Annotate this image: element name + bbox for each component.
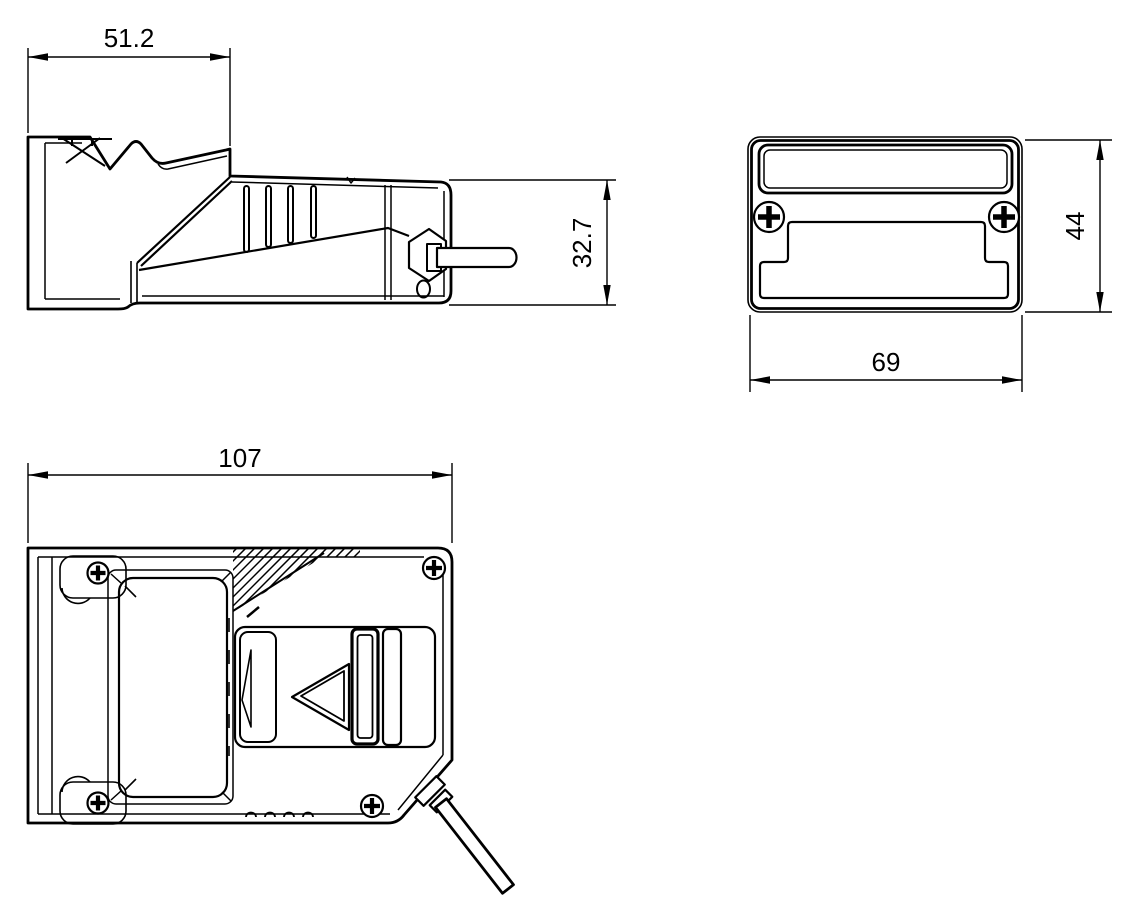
dim-label-side-width: 51.2 (104, 23, 155, 53)
dimension-69: 69 (750, 315, 1022, 392)
arrowhead-right-icon (1002, 376, 1022, 383)
dim-label-front-width: 69 (872, 347, 901, 377)
side-outline (28, 137, 451, 309)
label-pad-base (108, 570, 233, 804)
pointer-sliver (242, 650, 251, 727)
arrowhead-right-icon (432, 471, 452, 478)
side-view: 51.2 (28, 23, 616, 309)
phillips-screw-icon (989, 202, 1019, 232)
dim-label-front-height: 44 (1060, 212, 1090, 241)
arrowhead-left-icon (750, 376, 770, 383)
dimension-107: 107 (28, 443, 452, 543)
arrowhead-left-icon (28, 471, 48, 478)
phillips-screw-icon (88, 793, 109, 814)
arrowhead-right-icon (210, 53, 230, 61)
arrowhead-up-icon (603, 180, 610, 200)
hatch-region (135, 440, 480, 650)
module-left-pad (240, 632, 276, 742)
indicator-hole (417, 281, 430, 298)
front-cutout (760, 222, 1008, 298)
technical-drawing-canvas: 51.2 (0, 0, 1134, 921)
slider-bar (352, 629, 378, 744)
scan-window (759, 145, 1012, 193)
phillips-screw-icon (423, 557, 445, 579)
body-crease-line (139, 228, 409, 270)
cable-pin (437, 248, 517, 267)
top-view: 107 (28, 440, 514, 893)
control-module (235, 627, 435, 747)
arrowhead-down-icon (1096, 292, 1103, 312)
arrowhead-down-icon (603, 285, 610, 305)
label-pad (119, 578, 227, 797)
front-inner-case (752, 141, 1019, 309)
phillips-screw-icon (754, 202, 784, 232)
drawing-page: 51.2 (0, 0, 1134, 921)
phillips-screw-icon (361, 795, 383, 817)
phillips-screw-icon (88, 563, 109, 584)
front-view: 44 69 (748, 137, 1112, 392)
cable-exit (415, 776, 513, 893)
dimension-51-2: 51.2 (28, 23, 230, 146)
dimension-44: 44 (1025, 140, 1112, 312)
dimension-32-7: 32.7 (449, 180, 616, 305)
cable (436, 799, 514, 894)
dim-label-top-width: 107 (218, 443, 261, 473)
slider-rail (383, 629, 401, 745)
arrowhead-up-icon (1096, 140, 1103, 160)
arrowhead-left-icon (28, 53, 48, 61)
dim-label-side-height: 32.7 (567, 218, 597, 269)
